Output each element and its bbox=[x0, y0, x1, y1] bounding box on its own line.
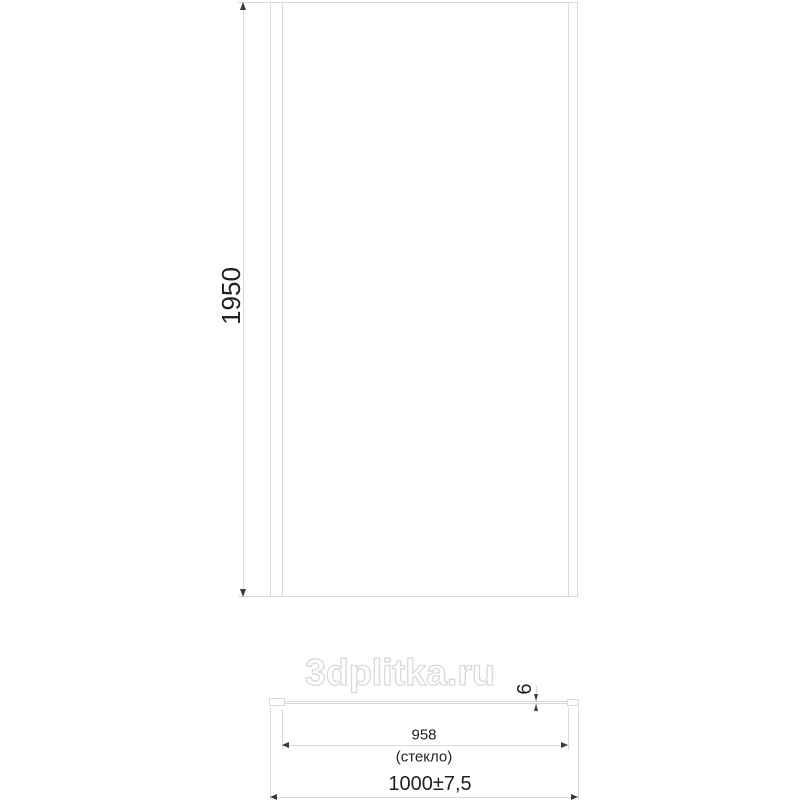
overall-width-dim-line bbox=[270, 797, 578, 798]
height-dim-label: 1950 bbox=[218, 267, 244, 325]
overall-width-dim-arrow-left-icon bbox=[270, 794, 277, 800]
overall-width-dim-right-extension-line bbox=[578, 707, 579, 800]
plan-view-right-wall-profile bbox=[567, 699, 579, 706]
height-dim-arrow-up-icon bbox=[240, 2, 246, 10]
plan-view-glass-section bbox=[284, 701, 568, 704]
overall-width-dim-arrow-right-icon bbox=[571, 794, 578, 800]
dimension-drawing: 1950 3dplitka.ru 6 958 (стекло) 1000±7,5 bbox=[0, 0, 800, 800]
thickness-dim-arrow-down-icon bbox=[534, 694, 538, 701]
glass-width-dim-label: 958 bbox=[411, 728, 436, 743]
overall-width-dim-label: 1000±7,5 bbox=[388, 774, 471, 794]
thickness-dim-label: 6 bbox=[515, 683, 535, 694]
front-view-panel-outline bbox=[270, 2, 578, 597]
glass-width-dim-arrow-left-icon bbox=[282, 742, 289, 748]
front-view-left-profile-line bbox=[282, 2, 283, 597]
watermark: 3dplitka.ru bbox=[0, 640, 800, 702]
front-view-right-profile-line bbox=[568, 2, 569, 597]
glass-width-dim-note: (стекло) bbox=[396, 750, 453, 765]
glass-width-dim-arrow-right-icon bbox=[561, 742, 568, 748]
glass-width-dim-line bbox=[282, 745, 568, 746]
glass-width-dim-right-extension-line bbox=[568, 707, 569, 750]
watermark-text: 3dplitka.ru bbox=[305, 652, 495, 693]
overall-width-dim-left-extension-line bbox=[270, 708, 271, 800]
thickness-dim-arrow-up-icon bbox=[534, 704, 538, 711]
height-dim-arrow-down-icon bbox=[240, 589, 246, 597]
plan-view-left-wall-profile bbox=[269, 698, 285, 706]
